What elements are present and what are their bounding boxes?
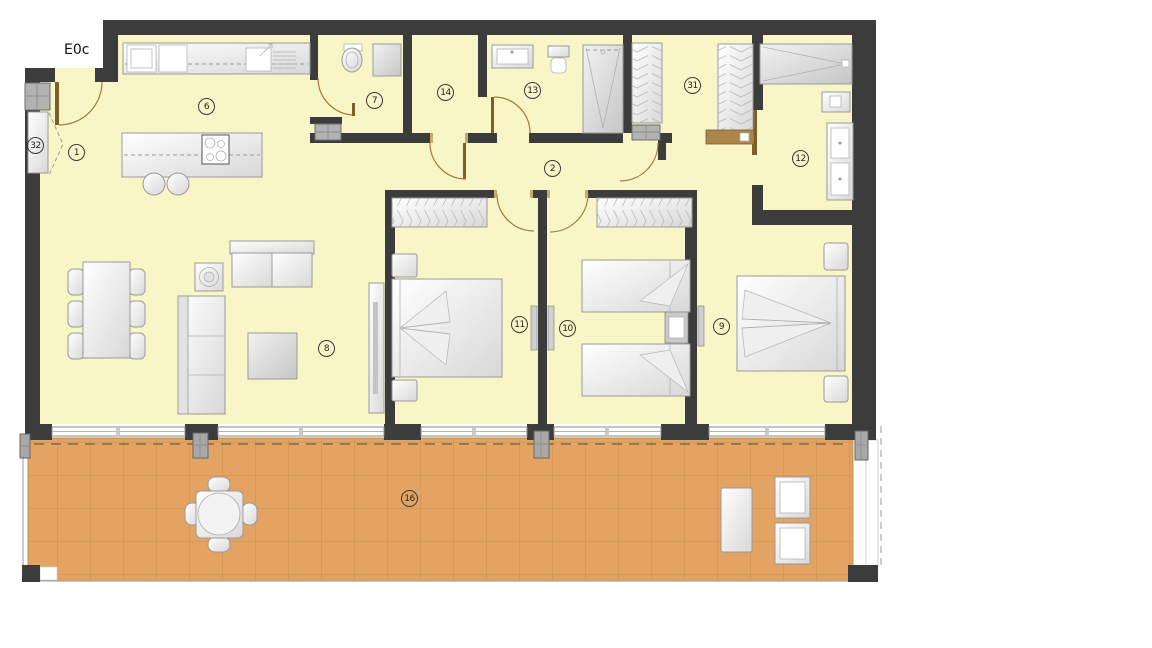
kitchen-sink (246, 44, 272, 71)
shower-tray (760, 44, 852, 84)
room-badge-entry: 1 (68, 144, 85, 161)
double-bed (737, 276, 845, 371)
shower-tray (583, 45, 623, 133)
appliance-box (315, 124, 341, 140)
column (20, 434, 30, 458)
room-badge-utility: 32 (27, 137, 44, 154)
wardrobe (392, 198, 487, 227)
bookshelf (178, 296, 225, 414)
sofa (230, 241, 314, 287)
appliance-box (632, 125, 660, 140)
dining-set (68, 262, 145, 359)
wardrobe (597, 198, 692, 227)
kitchen-counter (123, 43, 310, 74)
shelf-bench (706, 130, 754, 144)
lounge-chair (775, 477, 810, 518)
washing-machine (25, 83, 50, 110)
window (709, 427, 825, 436)
room-badge-bedroom-double: 11 (511, 316, 528, 333)
room-badge-bathroom-guest: 7 (366, 92, 383, 109)
room-badge-living-room: 8 (318, 340, 335, 357)
nightstand (824, 376, 848, 402)
wardrobe (718, 44, 753, 133)
window (52, 427, 185, 436)
window (421, 427, 527, 436)
nightstand (824, 243, 848, 270)
toilet (342, 44, 362, 72)
room-badge-bathroom-master: 12 (792, 150, 809, 167)
wardrobe (632, 43, 662, 123)
double-vanity (827, 123, 853, 200)
room-badge-bathroom-main: 13 (524, 82, 541, 99)
toilet (822, 92, 850, 112)
column (193, 433, 208, 458)
column (855, 431, 868, 460)
window (554, 427, 661, 436)
windows (52, 427, 825, 436)
kitchen-island (122, 133, 262, 177)
nightstand (665, 312, 688, 343)
tv-unit (369, 283, 384, 413)
single-bed (582, 260, 690, 312)
room-badge-dressing: 31 (684, 77, 701, 94)
lounge-chair (775, 523, 810, 564)
window (218, 427, 384, 436)
shower-unit (373, 44, 401, 76)
room-badge-kitchen: 6 (198, 98, 215, 115)
side-table-plant (195, 263, 223, 291)
floor-plan-drawing (0, 0, 1152, 648)
room-badge-bedroom-master: 9 (713, 318, 730, 335)
single-bed (582, 344, 690, 396)
room-badge-hallway: 2 (544, 160, 561, 177)
plan-title: E0c (64, 42, 89, 58)
utility-closet (25, 83, 50, 173)
sun-lounger (721, 488, 752, 552)
nightstand (392, 380, 417, 401)
sink (492, 45, 533, 68)
floor-plan-page: E0c 1 2 6 7 8 9 10 11 12 13 14 16 31 32 (0, 0, 1152, 648)
room-badge-storage: 14 (437, 84, 454, 101)
room-badge-terrace: 16 (401, 490, 418, 507)
cooktop (202, 135, 229, 164)
room-badge-bedroom-twin: 10 (559, 320, 576, 337)
nightstand (392, 254, 417, 277)
column (534, 431, 549, 458)
double-bed (392, 279, 502, 377)
pouf (248, 333, 297, 379)
dining-table (83, 262, 130, 358)
